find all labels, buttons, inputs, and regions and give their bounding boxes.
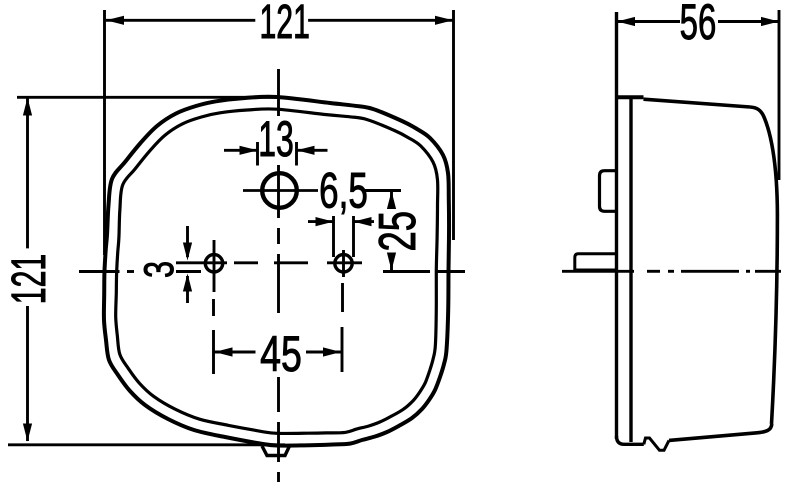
svg-text:3: 3 <box>135 261 182 278</box>
svg-text:6,5: 6,5 <box>319 163 368 219</box>
svg-text:56: 56 <box>680 0 717 50</box>
svg-text:13: 13 <box>258 111 294 167</box>
svg-text:121: 121 <box>3 254 56 304</box>
svg-text:121: 121 <box>259 0 309 49</box>
svg-text:25: 25 <box>367 211 426 251</box>
svg-text:45: 45 <box>260 327 302 382</box>
